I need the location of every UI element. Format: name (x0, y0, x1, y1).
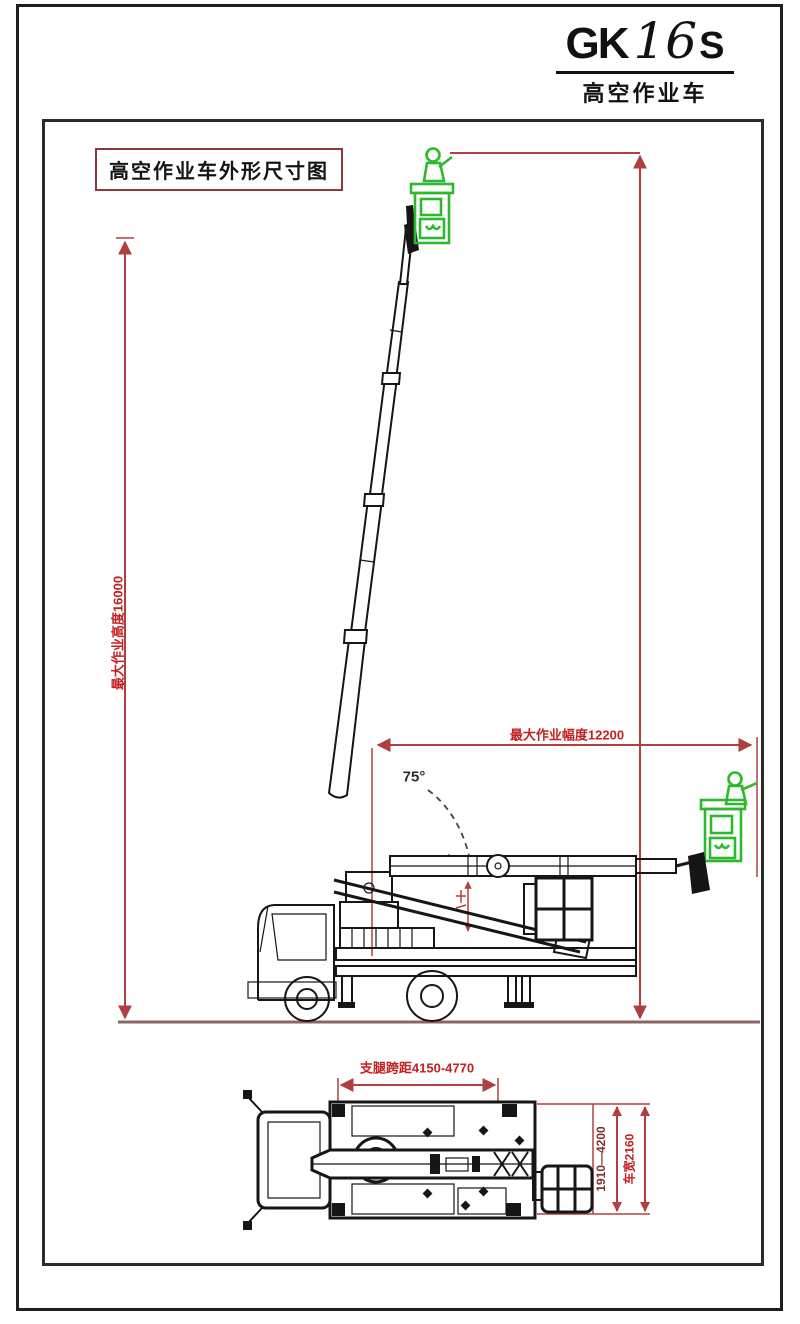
telescopic-boom (329, 205, 419, 798)
label-outrigger-span: 支腿跨距4150-4770 (360, 1058, 474, 1077)
label-max-work-radius: 最大作业幅度12200 (510, 725, 624, 744)
angle-arc (428, 790, 470, 860)
top-work-platform (411, 149, 453, 244)
side-work-platform (701, 773, 757, 862)
page: { "logo": { "series": "GK", "model_numbe… (0, 0, 800, 1324)
platform-bracket (688, 852, 710, 894)
tiny-dimension-mark (456, 890, 466, 908)
label-vehicle-width: 车宽2160 (621, 1134, 638, 1185)
label-boom-angle: 75° (403, 769, 426, 786)
rear-wheel (407, 971, 457, 1021)
worker-figure-side (729, 773, 742, 786)
worker-figure-top (427, 149, 440, 162)
truck-plan-view (243, 1090, 592, 1230)
label-outrigger-lateral-span: 1910—4200 (594, 1126, 608, 1191)
label-max-work-height: 最大作业高度16000 (108, 576, 127, 690)
cab (258, 905, 334, 1000)
platform-glyph (426, 226, 440, 229)
dimension-lines (116, 153, 760, 1214)
